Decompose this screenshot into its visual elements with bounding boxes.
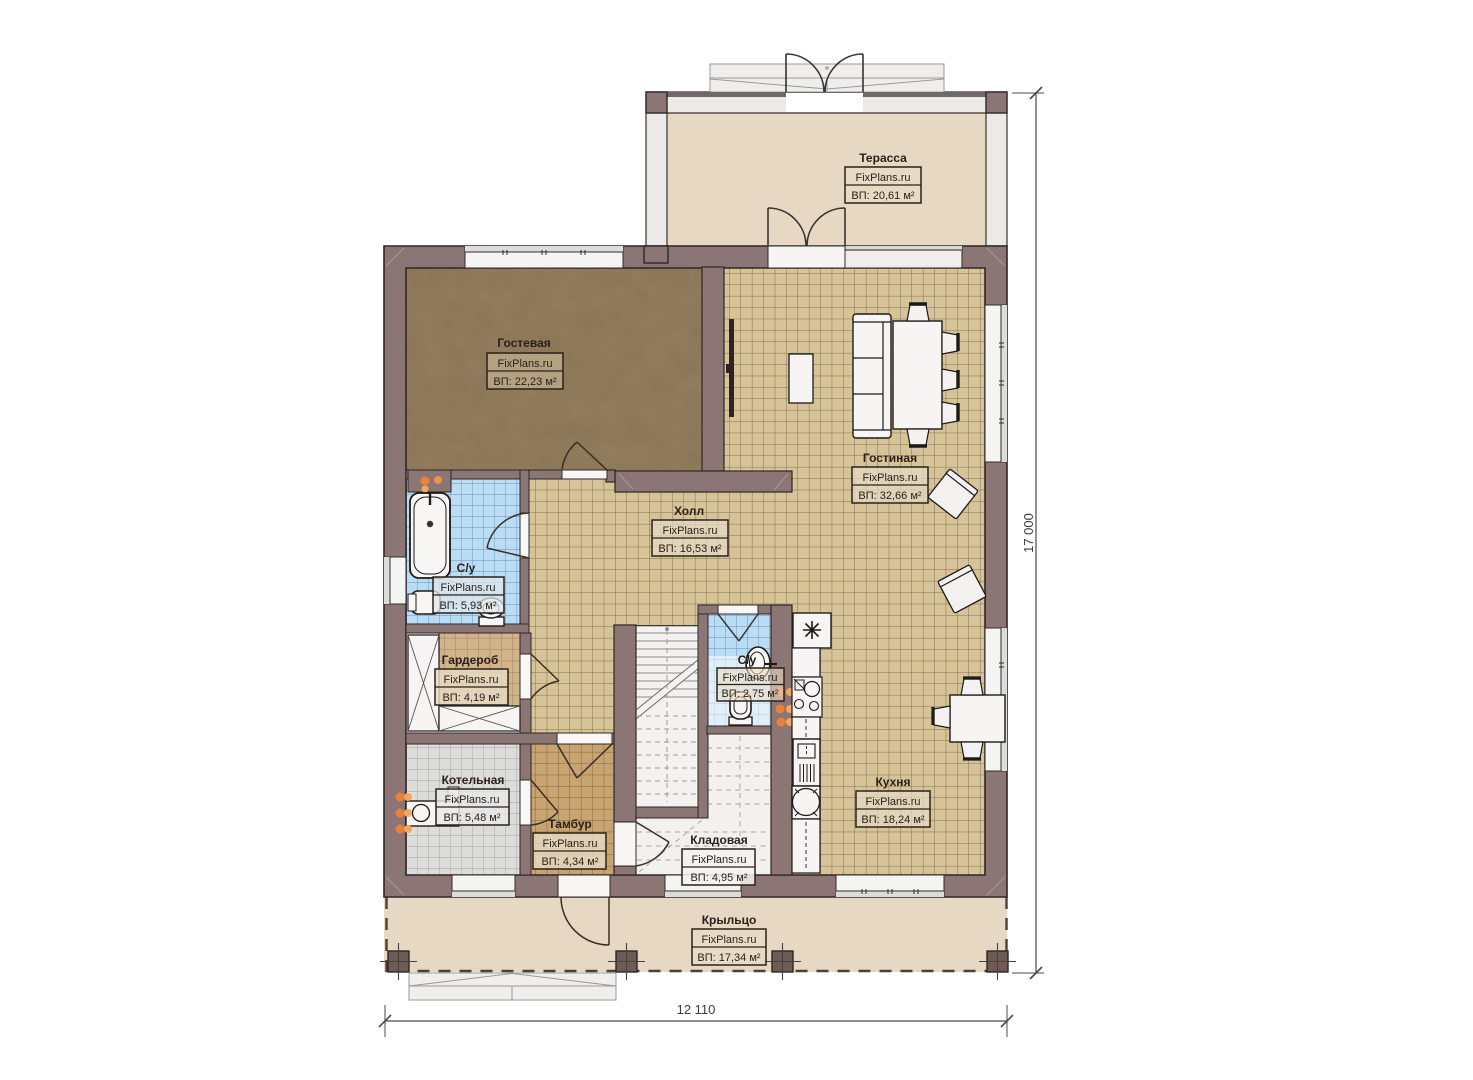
svg-text:ВП: 4,19 м²: ВП: 4,19 м²	[442, 692, 499, 704]
svg-text:Гостиная: Гостиная	[863, 451, 917, 465]
svg-text:ВП: 32,66 м²: ВП: 32,66 м²	[858, 490, 922, 502]
svg-text:FixPlans.ru: FixPlans.ru	[662, 525, 717, 537]
svg-text:ВП: 18,24 м²: ВП: 18,24 м²	[861, 814, 925, 826]
svg-text:FixPlans.ru: FixPlans.ru	[497, 358, 552, 370]
svg-text:FixPlans.ru: FixPlans.ru	[440, 582, 495, 594]
svg-text:Крыльцо: Крыльцо	[702, 913, 757, 927]
svg-text:FixPlans.ru: FixPlans.ru	[542, 838, 597, 850]
svg-text:ВП: 2,75 м²: ВП: 2,75 м²	[721, 688, 778, 700]
svg-text:ВП: 4,34 м²: ВП: 4,34 м²	[541, 856, 598, 868]
svg-text:FixPlans.ru: FixPlans.ru	[862, 472, 917, 484]
svg-text:FixPlans.ru: FixPlans.ru	[865, 796, 920, 808]
svg-text:С/у: С/у	[457, 561, 476, 575]
svg-text:FixPlans.ru: FixPlans.ru	[855, 172, 910, 184]
svg-text:Холл: Холл	[674, 504, 704, 518]
svg-text:FixPlans.ru: FixPlans.ru	[443, 674, 498, 686]
svg-text:ВП: 5,93 м²: ВП: 5,93 м²	[439, 600, 496, 612]
svg-text:Кладовая: Кладовая	[690, 833, 747, 847]
svg-text:ВП: 16,53 м²: ВП: 16,53 м²	[658, 543, 722, 555]
svg-text:FixPlans.ru: FixPlans.ru	[701, 934, 756, 946]
svg-text:ВП: 20,61 м²: ВП: 20,61 м²	[851, 190, 915, 202]
svg-text:Гостевая: Гостевая	[497, 336, 551, 350]
svg-text:17 000: 17 000	[1021, 513, 1036, 553]
svg-text:ВП: 5,48 м²: ВП: 5,48 м²	[443, 812, 500, 824]
svg-text:FixPlans.ru: FixPlans.ru	[444, 794, 499, 806]
svg-text:ВП: 22,23 м²: ВП: 22,23 м²	[493, 376, 557, 388]
svg-text:С/у: С/у	[738, 653, 757, 667]
svg-text:FixPlans.ru: FixPlans.ru	[722, 672, 777, 684]
svg-text:Гардероб: Гардероб	[442, 653, 499, 667]
svg-text:ВП: 4,95 м²: ВП: 4,95 м²	[690, 872, 747, 884]
svg-text:Котельная: Котельная	[442, 773, 505, 787]
svg-text:Тамбур: Тамбур	[548, 817, 592, 831]
svg-text:Терасса: Терасса	[859, 151, 907, 165]
svg-text:ВП: 17,34 м²: ВП: 17,34 м²	[697, 952, 761, 964]
svg-text:12 110: 12 110	[677, 1002, 716, 1017]
svg-text:FixPlans.ru: FixPlans.ru	[691, 854, 746, 866]
svg-text:Кухня: Кухня	[875, 775, 910, 789]
